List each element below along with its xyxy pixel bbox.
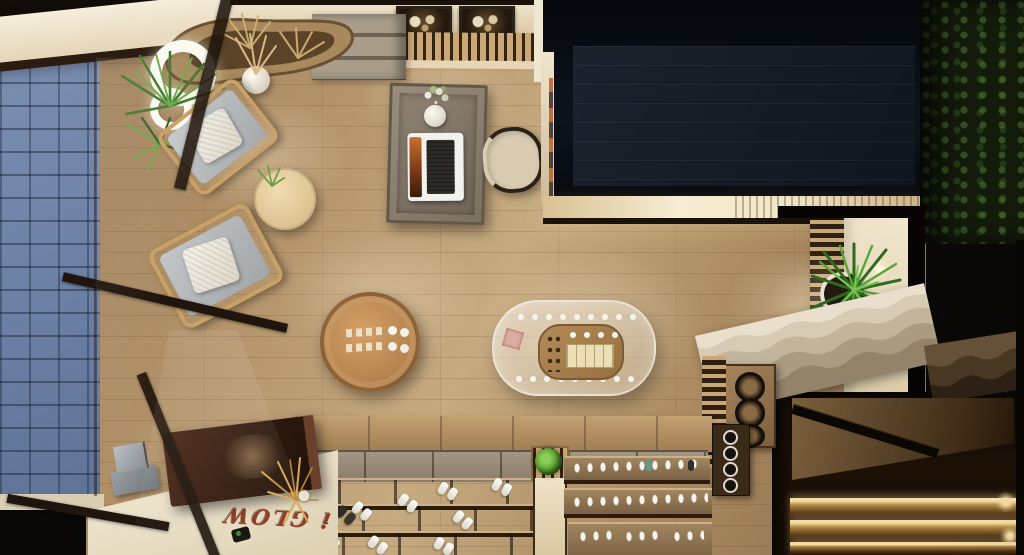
product-row	[346, 342, 386, 353]
inner-wood-island	[538, 324, 624, 380]
lit-step	[790, 520, 1024, 542]
lit-step	[790, 498, 1024, 520]
small-plant	[535, 448, 562, 475]
void-lower-floor	[573, 46, 915, 186]
product-ball	[388, 326, 397, 335]
display-shelf-bottles	[712, 424, 750, 496]
shelf-aisle	[533, 478, 567, 555]
work-desk	[386, 83, 488, 226]
blue-paver-walkway	[0, 34, 100, 498]
oval-display-case	[492, 300, 656, 396]
cream-tray	[566, 344, 614, 368]
camera-lens-dot	[236, 531, 241, 536]
glass-edge-reflections	[549, 78, 553, 198]
lit-step	[790, 542, 1024, 555]
pink-display-box	[502, 328, 524, 350]
product-row	[346, 327, 386, 338]
right-edge-wall	[1016, 240, 1024, 555]
shoe-accent-black	[688, 460, 694, 471]
eyewear-row	[514, 310, 636, 323]
laptop-keyboard	[426, 140, 454, 194]
stone-steps-dark	[924, 330, 1024, 403]
bottle-cap	[723, 478, 738, 493]
laptop	[407, 133, 464, 201]
desk-flowers	[434, 101, 437, 104]
bottom-wood-wall	[296, 416, 712, 452]
round-display-table	[320, 292, 420, 392]
store-top-view-render: i GLOW	[0, 0, 1024, 555]
table-plant-sprig	[252, 160, 288, 196]
bottle-cap	[723, 462, 738, 477]
shoe-accent-teal	[646, 460, 652, 471]
metal-stand	[106, 440, 162, 498]
top-wall-edge	[230, 0, 548, 5]
stand-panel	[113, 442, 149, 473]
stair-wall-glow	[996, 492, 1016, 512]
partition-top	[778, 206, 925, 218]
laptop-screen	[409, 137, 422, 197]
shoe-row	[622, 527, 663, 545]
eyewear-row	[566, 328, 618, 340]
bottle-cap	[723, 446, 738, 461]
bottle-cap	[723, 430, 738, 445]
plant-wall	[920, 0, 1024, 244]
storefront-base-line	[94, 34, 97, 496]
shoe-row	[576, 527, 615, 545]
golden-dried-plant	[248, 448, 332, 532]
dark-rings	[546, 334, 562, 372]
shoe-row	[670, 527, 705, 545]
